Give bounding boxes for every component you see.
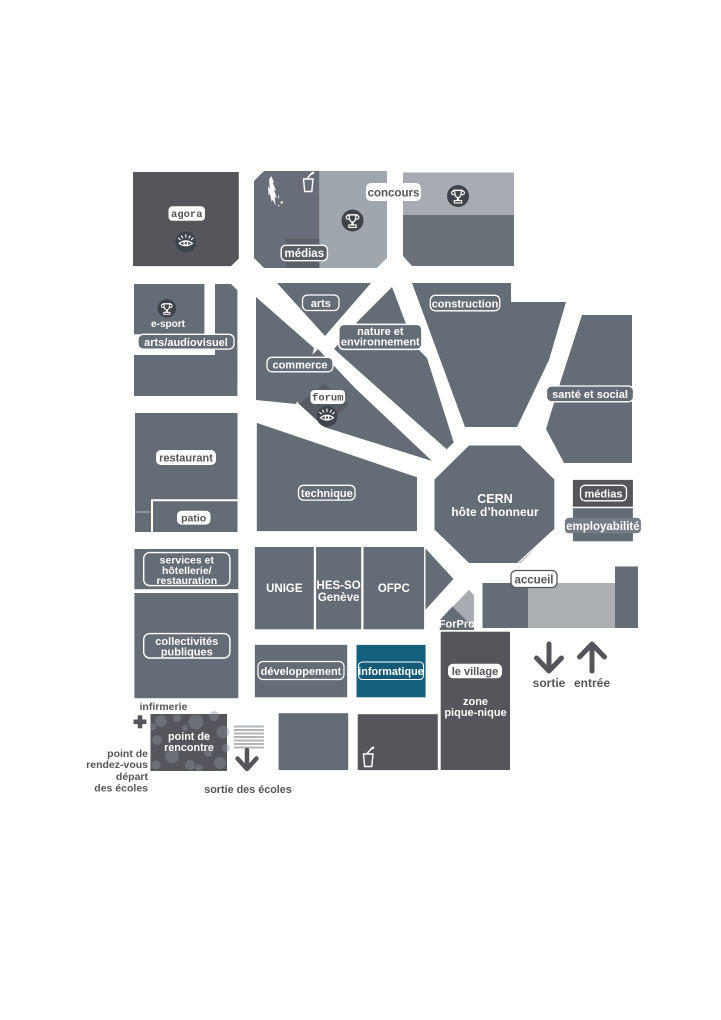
svg-text:infirmerie: infirmerie — [140, 701, 188, 713]
svg-text:agora: agora — [171, 209, 203, 221]
svg-text:employabilité: employabilité — [566, 521, 640, 533]
svg-text:rendez-vous: rendez-vous — [86, 759, 148, 771]
svg-text:patio: patio — [181, 513, 206, 525]
svg-text:ForPro: ForPro — [439, 619, 475, 631]
svg-text:technique: technique — [301, 488, 353, 500]
svg-text:restauration: restauration — [156, 575, 217, 587]
svg-text:Genève: Genève — [318, 592, 360, 604]
svg-text:sortie des écoles: sortie des écoles — [204, 784, 292, 796]
svg-text:médias: médias — [585, 488, 623, 500]
svg-text:rencontre: rencontre — [164, 742, 214, 754]
svg-text:arts/audiovisuel: arts/audiovisuel — [144, 337, 228, 349]
svg-text:concours: concours — [368, 188, 420, 200]
svg-text:le village: le village — [452, 666, 498, 678]
svg-text:UNIGE: UNIGE — [266, 583, 303, 595]
svg-text:départ: départ — [116, 771, 149, 783]
svg-text:construction: construction — [432, 298, 499, 310]
svg-text:accueil: accueil — [515, 575, 554, 587]
svg-text:des écoles: des écoles — [94, 783, 148, 795]
svg-text:développement: développement — [261, 666, 342, 678]
svg-text:forum: forum — [312, 393, 344, 405]
svg-text:environnement: environnement — [341, 337, 420, 349]
svg-text:sortie: sortie — [533, 676, 566, 690]
svg-text:entrée: entrée — [574, 676, 610, 690]
svg-text:informatique: informatique — [358, 666, 423, 678]
svg-text:restaurant: restaurant — [159, 453, 213, 465]
svg-text:santé et social: santé et social — [552, 389, 628, 401]
svg-text:pique-nique: pique-nique — [444, 707, 506, 719]
svg-text:e-sport: e-sport — [151, 319, 186, 330]
svg-text:arts: arts — [311, 298, 331, 310]
svg-text:commerce: commerce — [272, 360, 327, 372]
svg-text:hôte d’honneur: hôte d’honneur — [451, 505, 539, 519]
svg-text:HES-SO: HES-SO — [317, 580, 361, 592]
svg-text:OFPC: OFPC — [378, 583, 410, 595]
svg-text:médias: médias — [284, 248, 324, 260]
svg-text:publiques: publiques — [161, 646, 213, 658]
